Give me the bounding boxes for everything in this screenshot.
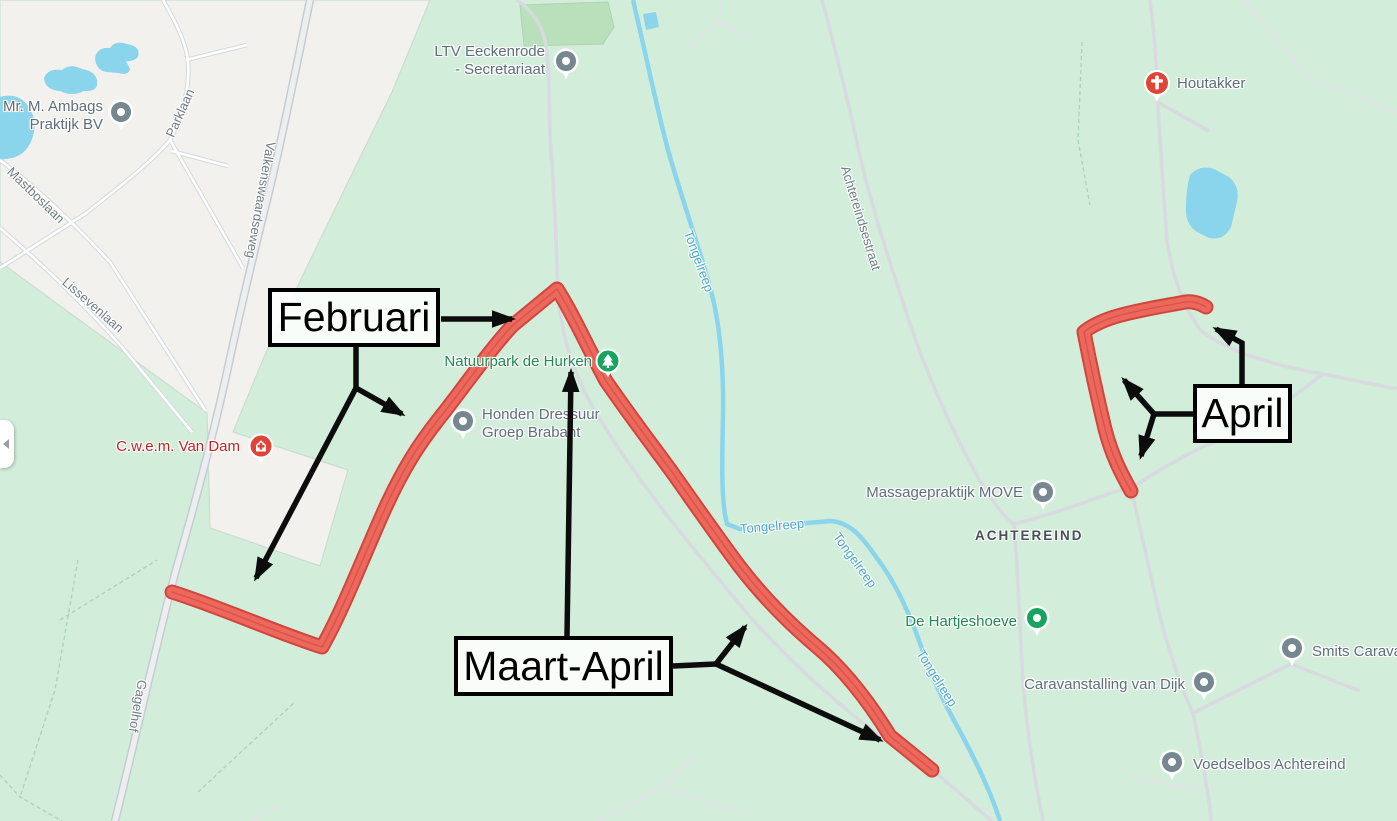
annotation-box-maart-april: Maart-April: [454, 636, 673, 696]
annotation-box-april: April: [1193, 384, 1292, 443]
arrow-maart-up: [567, 372, 571, 636]
arrow-februari-mid: [356, 388, 402, 414]
arrow-maart-lower-right: [716, 664, 880, 740]
annotation-arrows-layer: [0, 0, 1397, 821]
arrow-maart-upper-right: [716, 627, 745, 664]
arrow-april-top: [1216, 329, 1242, 384]
annotation-box-februari: Februari: [268, 288, 440, 347]
arrow-februari-left: [256, 388, 356, 578]
map-canvas[interactable]: Mr. M. AmbagsPraktijk BV LTV Eeckenrode-…: [0, 0, 1397, 821]
arrow-april-upper: [1124, 380, 1154, 414]
arrow-april-lower: [1141, 414, 1154, 456]
chevron-left-icon: [3, 439, 9, 449]
side-panel-collapse-tab[interactable]: [0, 420, 14, 468]
arrow-maart-stem: [673, 664, 716, 666]
